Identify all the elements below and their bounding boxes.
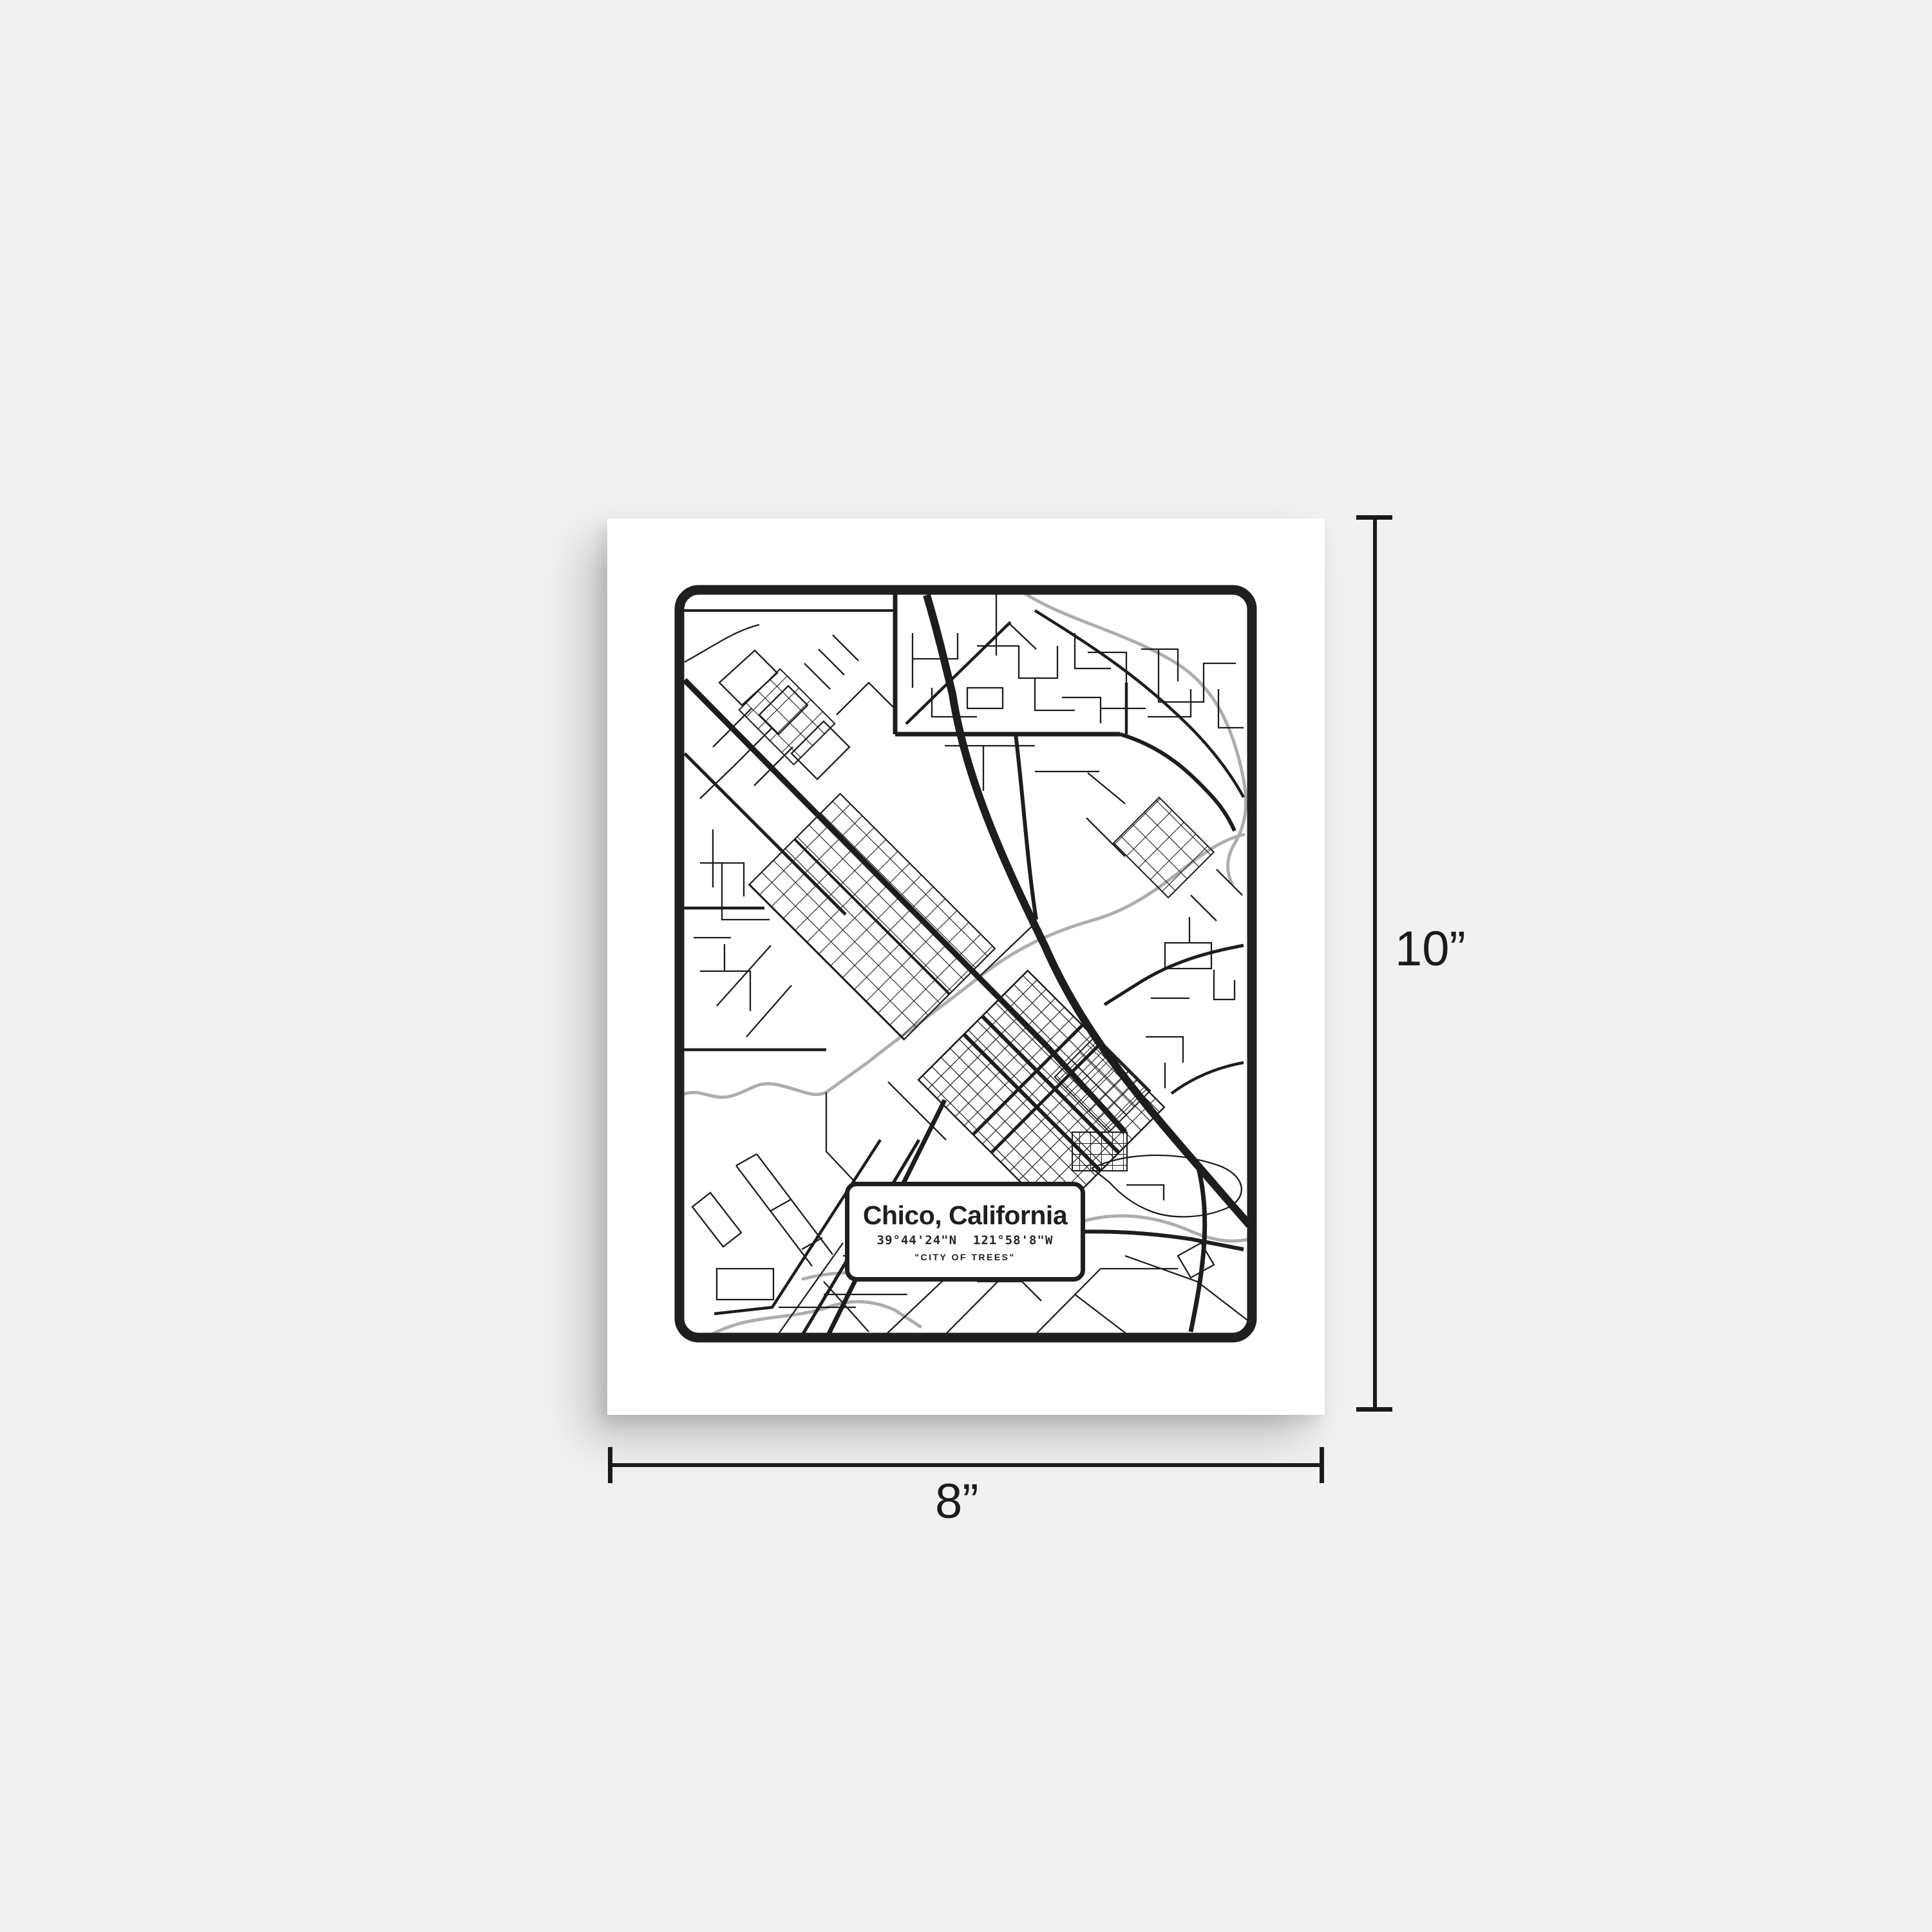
- city-nickname: "CITY OF TREES": [914, 1253, 1015, 1262]
- avenues-grid: [749, 793, 995, 1039]
- east-parcel-grid: [1113, 797, 1214, 898]
- width-dimension-line: [609, 1463, 1323, 1467]
- width-dimension-cap-left: [608, 1447, 612, 1483]
- geo-coordinates: 39°44'24"N 121°58'8"W: [877, 1235, 1054, 1247]
- height-dimension-cap-top: [1356, 515, 1392, 520]
- height-dimension-cap-bottom: [1356, 1407, 1392, 1412]
- width-dimension-label: 8”: [935, 1477, 979, 1526]
- map-title-plaque: Chico, California 39°44'24"N 121°58'8"W …: [845, 1182, 1085, 1282]
- backdrop: Chico, California 39°44'24"N 121°58'8"W …: [0, 0, 1932, 1932]
- height-dimension-label: 10”: [1395, 925, 1466, 974]
- city-name: Chico, California: [863, 1202, 1067, 1229]
- width-dimension-cap-right: [1320, 1447, 1324, 1483]
- chapman-grid: [1072, 1132, 1127, 1171]
- map-poster: Chico, California 39°44'24"N 121°58'8"W …: [607, 518, 1325, 1415]
- height-dimension-line: [1373, 516, 1377, 1410]
